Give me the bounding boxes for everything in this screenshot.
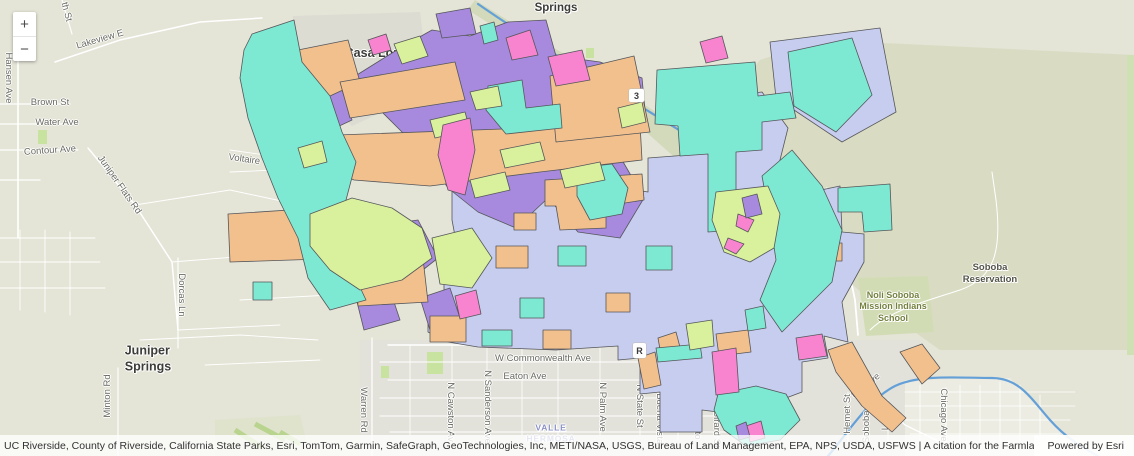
farmland-parcel[interactable] <box>430 316 466 342</box>
farmland-parcel[interactable] <box>368 34 391 55</box>
farmland-parcel[interactable] <box>548 50 590 86</box>
farmland-parcel[interactable] <box>686 320 714 350</box>
farmland-layer[interactable] <box>0 0 1134 456</box>
farmland-parcel[interactable] <box>838 184 892 232</box>
farmland-parcel[interactable] <box>543 330 571 349</box>
farmland-parcel[interactable] <box>520 298 544 318</box>
attribution-text: UC Riverside, County of Riverside, Calif… <box>0 435 1034 456</box>
farmland-parcel[interactable] <box>482 330 512 346</box>
farmland-parcel[interactable] <box>712 348 739 395</box>
map-canvas[interactable]: Hansen Ave th St Lakeview E Brown St Wat… <box>0 0 1134 456</box>
farmland-parcel[interactable] <box>828 342 906 432</box>
farmland-parcel[interactable] <box>900 344 940 384</box>
farmland-parcel[interactable] <box>496 246 528 268</box>
route-shield-3-label: 3 <box>634 91 639 101</box>
route-shield-r: R <box>633 343 646 358</box>
zoom-in-button[interactable]: + <box>13 12 36 36</box>
farmland-parcel[interactable] <box>796 334 827 360</box>
farmland-parcel[interactable] <box>646 246 672 270</box>
farmland-parcel[interactable] <box>558 246 586 266</box>
farmland-parcel[interactable] <box>514 213 536 230</box>
zoom-out-button[interactable]: − <box>13 37 36 61</box>
farmland-parcel[interactable] <box>253 282 272 300</box>
farmland-parcel[interactable] <box>606 293 630 312</box>
farmland-parcel[interactable] <box>745 306 766 331</box>
farmland-parcel[interactable] <box>436 8 476 38</box>
zoom-control: + − <box>13 12 36 61</box>
powered-by-esri-link[interactable]: Powered by Esri <box>1034 435 1134 456</box>
route-shield-3: 3 <box>629 89 644 102</box>
route-shield-r-label: R <box>636 346 643 356</box>
attribution-bar: UC Riverside, County of Riverside, Calif… <box>0 435 1134 456</box>
farmland-parcel[interactable] <box>700 36 728 63</box>
